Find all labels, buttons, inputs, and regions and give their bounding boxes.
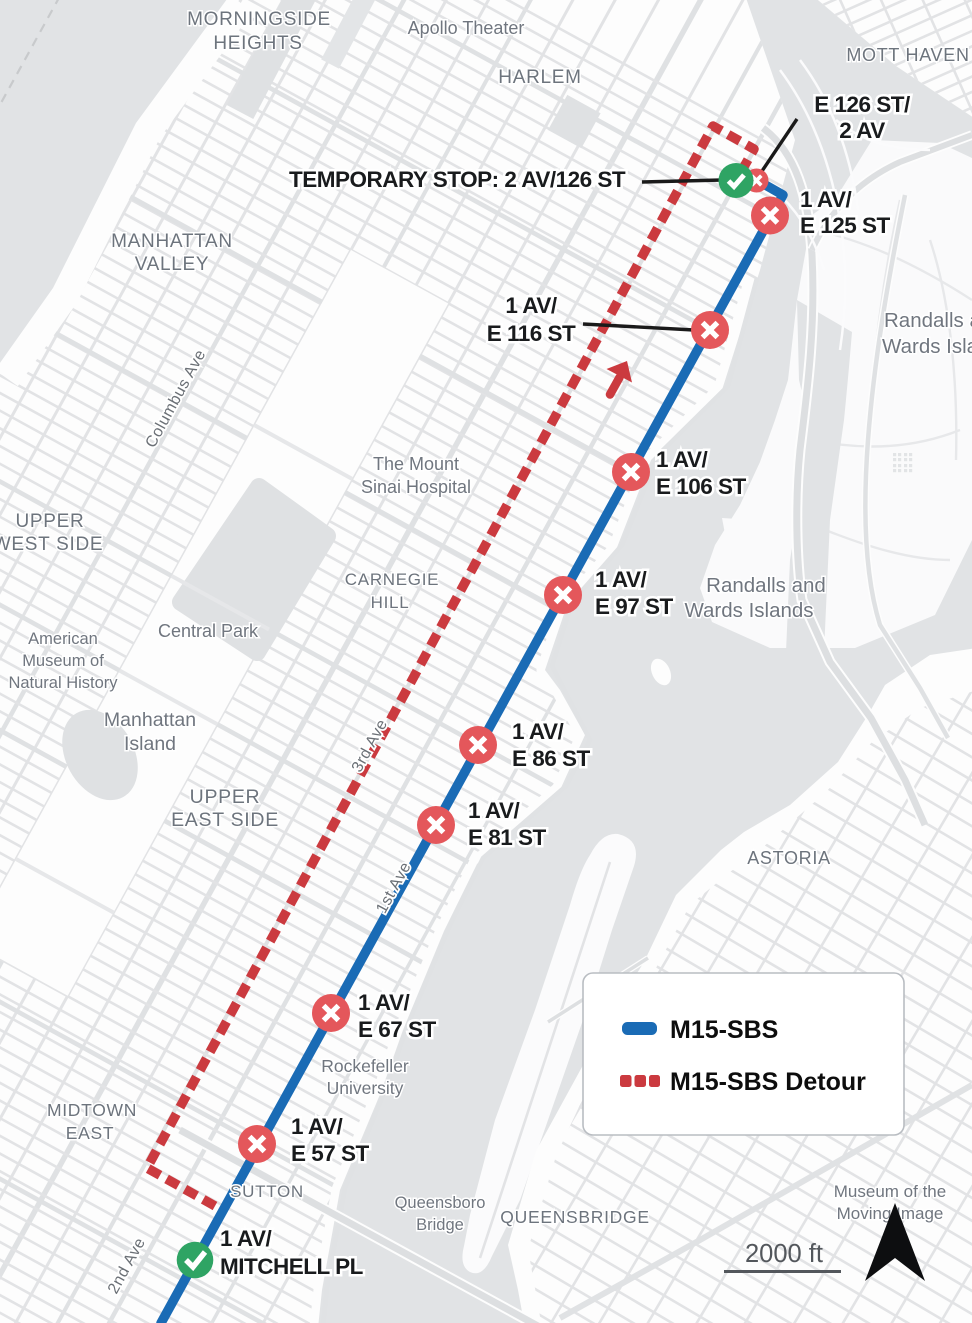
svg-text:MIDTOWN: MIDTOWN: [47, 1100, 137, 1120]
svg-text:E 67 ST: E 67 ST: [358, 1017, 437, 1042]
svg-text:1 AV/: 1 AV/: [358, 990, 411, 1015]
svg-text:1 AV/: 1 AV/: [800, 187, 853, 212]
svg-text:University: University: [327, 1078, 404, 1098]
svg-text:E 57 ST: E 57 ST: [291, 1141, 370, 1166]
svg-text:E 86 ST: E 86 ST: [512, 746, 591, 771]
svg-text:1 AV/: 1 AV/: [512, 719, 565, 744]
svg-text:EAST SIDE: EAST SIDE: [171, 809, 279, 831]
svg-text:MORNINGSIDE: MORNINGSIDE: [187, 9, 331, 30]
svg-text:1 AV/: 1 AV/: [291, 1114, 344, 1139]
svg-text:2000 ft: 2000 ft: [745, 1240, 823, 1268]
svg-text:Bridge: Bridge: [416, 1216, 464, 1234]
svg-text:E 97 ST: E 97 ST: [595, 594, 674, 619]
svg-text:Sinai Hospital: Sinai Hospital: [361, 477, 471, 497]
svg-text:MANHATTAN: MANHATTAN: [111, 231, 233, 252]
svg-text:Central Park: Central Park: [158, 621, 259, 641]
svg-text:E 125 ST: E 125 ST: [800, 213, 891, 238]
svg-text:UPPER: UPPER: [16, 511, 85, 532]
svg-text:1 AV/: 1 AV/: [468, 798, 521, 823]
svg-text:Natural History: Natural History: [8, 674, 118, 692]
svg-text:VALLEY: VALLEY: [135, 254, 210, 275]
svg-text:E 116 ST: E 116 ST: [487, 321, 576, 346]
svg-text:Randalls and: Randalls and: [706, 574, 826, 597]
svg-text:1 AV/: 1 AV/: [505, 293, 558, 318]
svg-text:Manhattan: Manhattan: [104, 709, 196, 731]
svg-text:Rockefeller: Rockefeller: [321, 1056, 409, 1076]
svg-text:Randalls a: Randalls a: [884, 309, 972, 332]
svg-text:Queensboro: Queensboro: [395, 1194, 486, 1212]
svg-text:SUTTON: SUTTON: [230, 1182, 304, 1201]
svg-text:QUEENSBRIDGE: QUEENSBRIDGE: [500, 1207, 649, 1227]
svg-text:E 106 ST: E 106 ST: [656, 474, 747, 499]
svg-text:Museum of: Museum of: [22, 652, 104, 670]
svg-text:Island: Island: [124, 733, 176, 755]
svg-text:2 AV: 2 AV: [839, 118, 885, 143]
svg-text:MOTT HAVEN: MOTT HAVEN: [846, 45, 969, 65]
svg-text:TEMPORARY STOP: 2 AV/126 ST: TEMPORARY STOP: 2 AV/126 ST: [289, 167, 626, 192]
svg-text:The Mount: The Mount: [373, 454, 459, 474]
svg-text:Museum of the: Museum of the: [834, 1182, 946, 1201]
svg-text:Apollo Theater: Apollo Theater: [408, 18, 525, 38]
svg-text:HILL: HILL: [371, 593, 410, 612]
svg-text:1 AV/: 1 AV/: [656, 447, 709, 472]
svg-text:1 AV/: 1 AV/: [220, 1226, 273, 1251]
svg-text:1 AV/: 1 AV/: [595, 567, 648, 592]
svg-text:M15-SBS: M15-SBS: [670, 1016, 778, 1044]
svg-text:American: American: [28, 630, 98, 648]
svg-text:M15-SBS Detour: M15-SBS Detour: [670, 1068, 866, 1096]
svg-text:ASTORIA: ASTORIA: [747, 848, 831, 868]
svg-text:WEST SIDE: WEST SIDE: [0, 534, 103, 555]
svg-text:HARLEM: HARLEM: [498, 67, 581, 88]
svg-text:EAST: EAST: [66, 1123, 115, 1143]
svg-text:UPPER: UPPER: [190, 786, 261, 808]
svg-text:Wards Islands: Wards Islands: [684, 599, 813, 622]
svg-text:E 126 ST/: E 126 ST/: [814, 92, 911, 117]
svg-text:MITCHELL PL: MITCHELL PL: [220, 1254, 364, 1279]
svg-text:CARNEGIE: CARNEGIE: [345, 570, 439, 589]
svg-text:E 81 ST: E 81 ST: [468, 825, 547, 850]
svg-text:Wards Isla: Wards Isla: [882, 335, 972, 358]
svg-text:HEIGHTS: HEIGHTS: [213, 33, 302, 54]
